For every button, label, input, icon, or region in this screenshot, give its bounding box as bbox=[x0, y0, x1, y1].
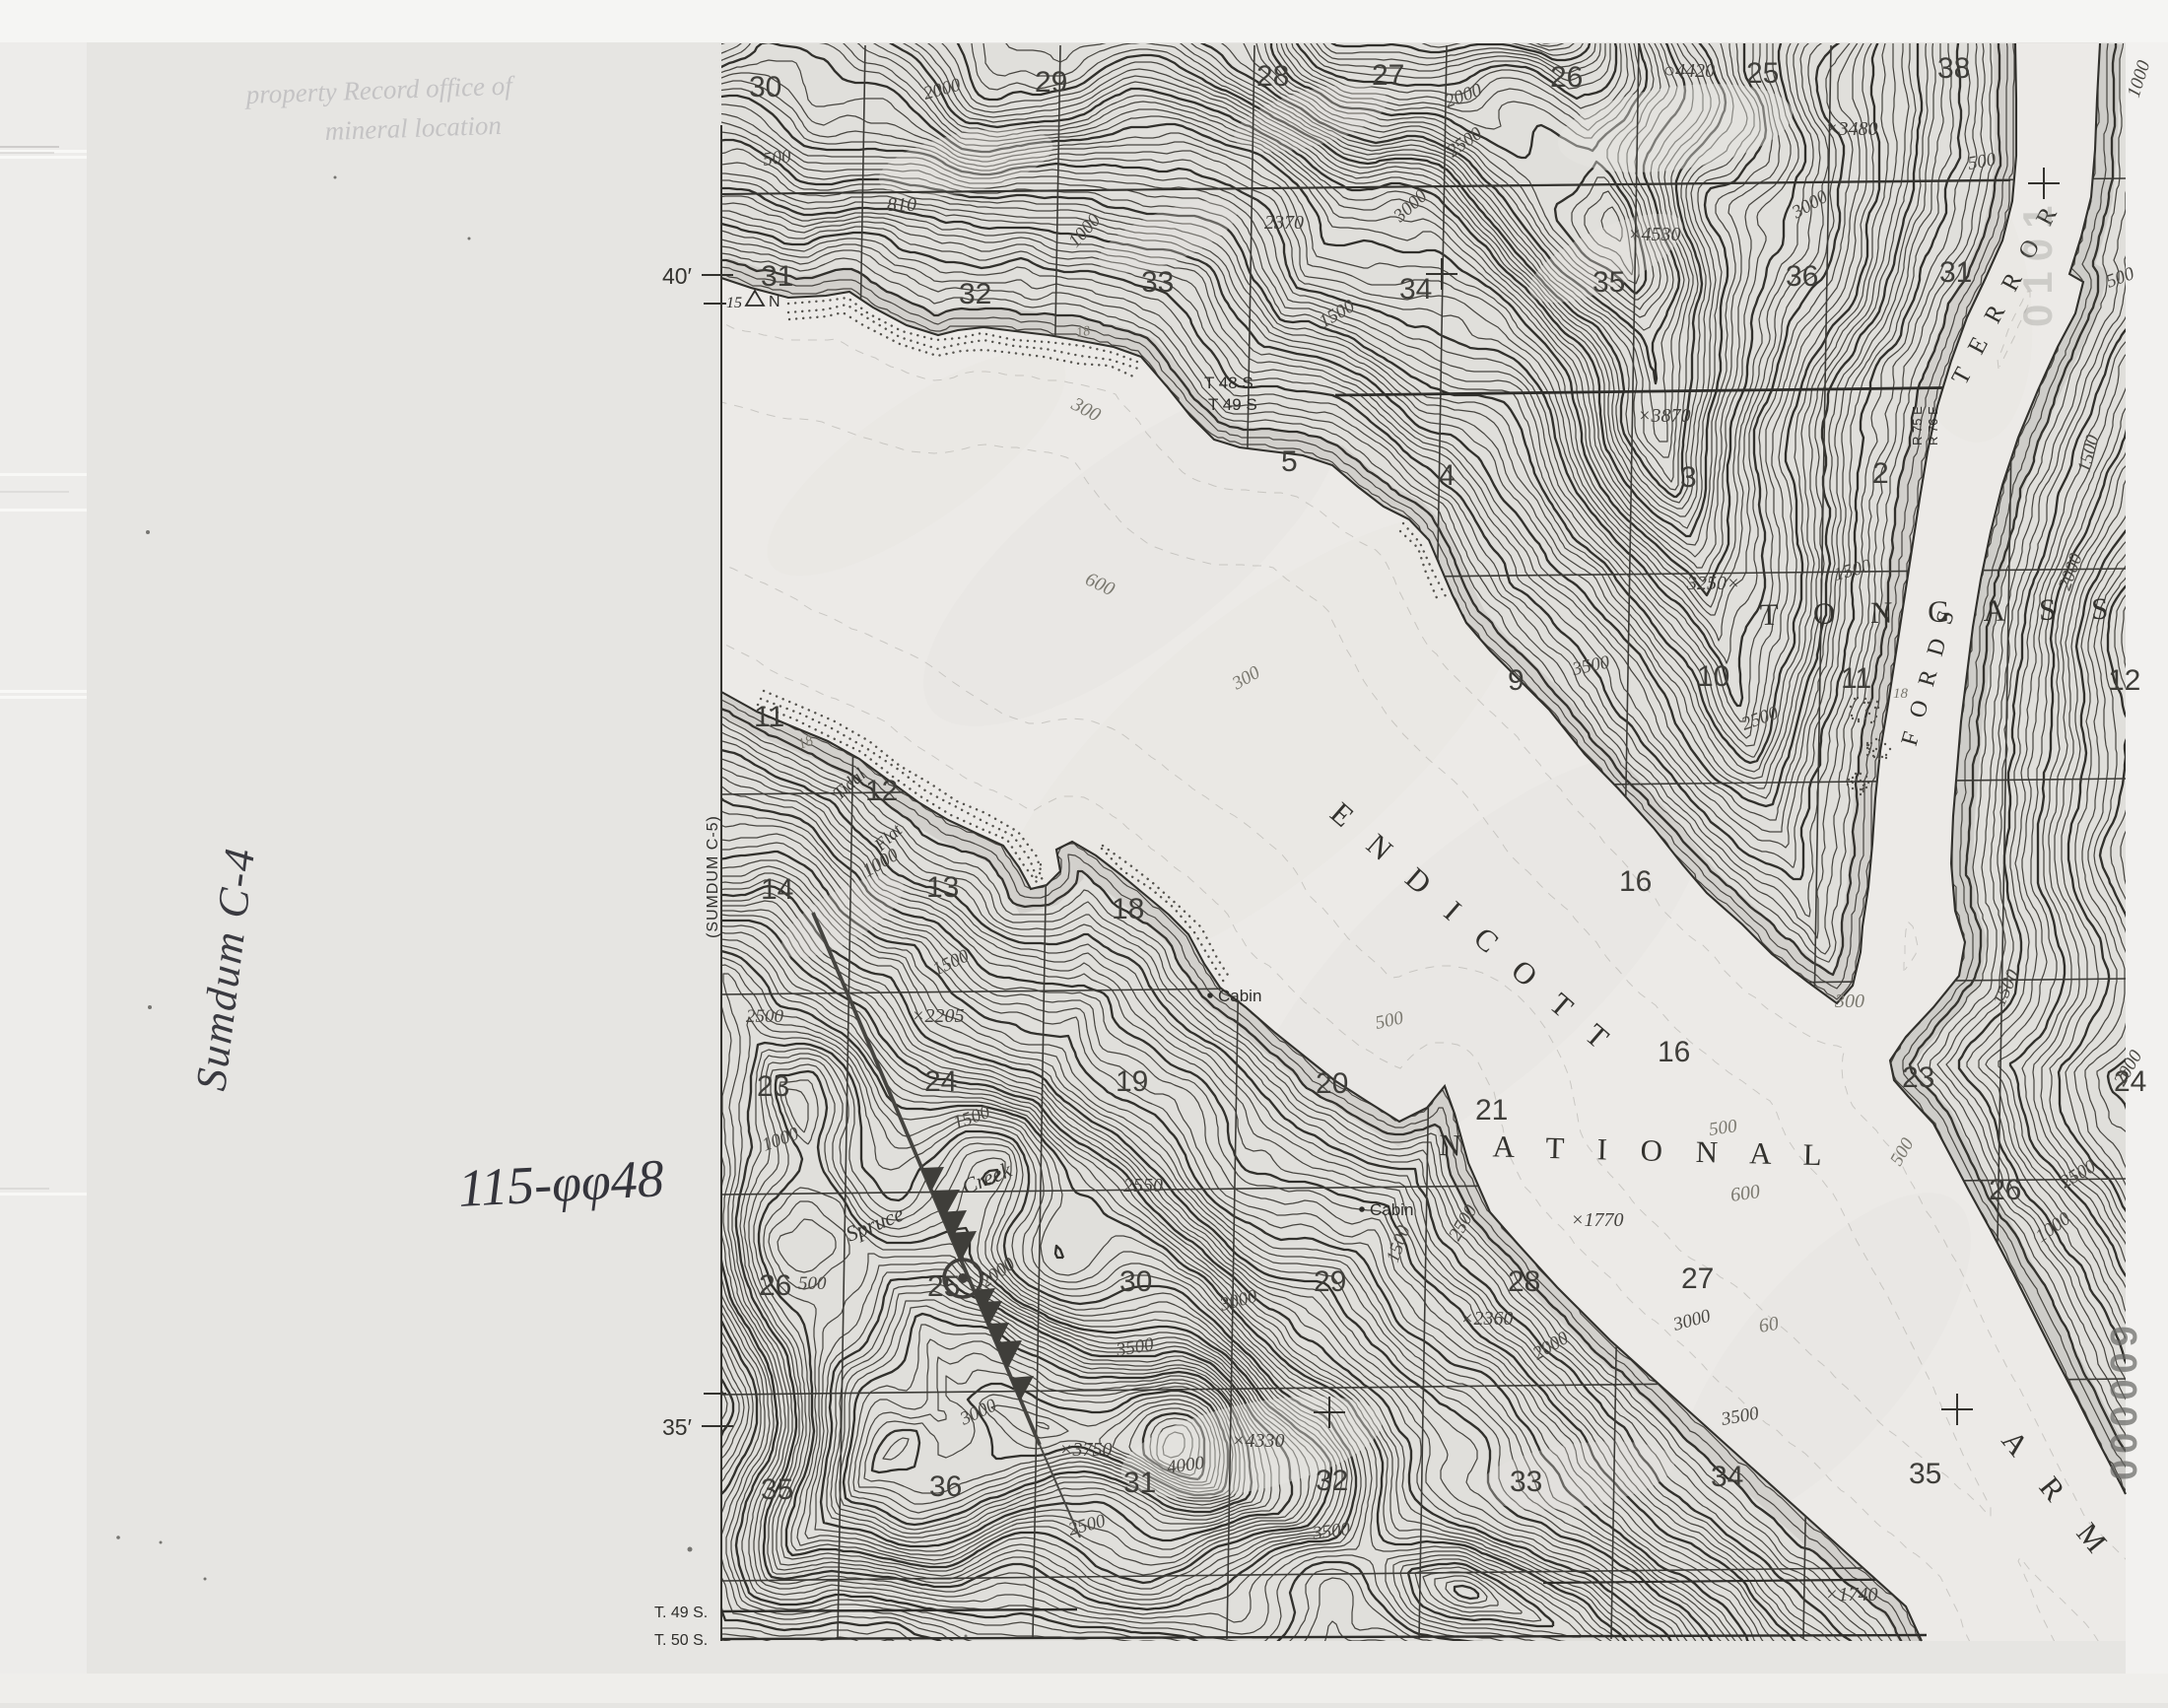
svg-text:36: 36 bbox=[929, 1470, 962, 1503]
svg-text:26: 26 bbox=[1550, 61, 1583, 94]
svg-text:14: 14 bbox=[761, 873, 793, 906]
svg-text:R 76 E: R 76 E bbox=[1926, 406, 1940, 445]
svg-text:Cabin: Cabin bbox=[1370, 1200, 1413, 1219]
svg-text:26: 26 bbox=[1989, 1174, 2021, 1206]
svg-text:×2360: ×2360 bbox=[1460, 1308, 1514, 1330]
svg-text:9: 9 bbox=[1508, 664, 1524, 697]
svg-text:15: 15 bbox=[726, 295, 742, 311]
svg-text:4: 4 bbox=[1439, 459, 1456, 492]
svg-text:115-φφ48: 115-φφ48 bbox=[456, 1148, 665, 1218]
svg-text:×3480: ×3480 bbox=[1825, 118, 1878, 140]
svg-text:28: 28 bbox=[1256, 60, 1289, 93]
svg-text:18: 18 bbox=[1075, 324, 1091, 341]
svg-text:×4330: ×4330 bbox=[1232, 1430, 1285, 1452]
svg-text:300: 300 bbox=[1834, 991, 1864, 1012]
svg-text:31: 31 bbox=[761, 260, 793, 293]
svg-text:27: 27 bbox=[1681, 1263, 1714, 1295]
svg-text:35: 35 bbox=[761, 1473, 793, 1506]
svg-text:18: 18 bbox=[1893, 686, 1909, 702]
svg-text:38: 38 bbox=[1937, 52, 1970, 85]
svg-text:33: 33 bbox=[1510, 1466, 1542, 1498]
svg-text:27: 27 bbox=[1372, 59, 1404, 92]
svg-text:T. 49 S.: T. 49 S. bbox=[654, 1605, 708, 1621]
svg-text:31: 31 bbox=[1123, 1467, 1156, 1499]
svg-text:24: 24 bbox=[924, 1065, 957, 1098]
svg-text:16: 16 bbox=[1658, 1036, 1690, 1068]
svg-text:31: 31 bbox=[1939, 256, 1972, 289]
svg-text:29: 29 bbox=[1314, 1265, 1346, 1298]
svg-text:N: N bbox=[769, 294, 780, 310]
svg-text:500: 500 bbox=[798, 1273, 827, 1294]
svg-text:T 48 S: T 48 S bbox=[1204, 374, 1253, 392]
svg-text:2550: 2550 bbox=[1123, 1175, 1163, 1196]
svg-text:23: 23 bbox=[757, 1070, 789, 1103]
svg-text:12: 12 bbox=[2108, 664, 2140, 697]
svg-text:16: 16 bbox=[1619, 865, 1652, 898]
svg-text:3250×: 3250× bbox=[1686, 573, 1740, 594]
svg-text:T. 50 S.: T. 50 S. bbox=[654, 1632, 708, 1649]
svg-text:26: 26 bbox=[759, 1269, 791, 1302]
svg-text:30: 30 bbox=[749, 71, 781, 103]
svg-text:×3750: ×3750 bbox=[1059, 1439, 1113, 1461]
svg-text:60: 60 bbox=[1757, 1313, 1781, 1337]
svg-text:500: 500 bbox=[762, 146, 793, 171]
svg-text:18: 18 bbox=[1112, 893, 1144, 925]
svg-text:Cabin: Cabin bbox=[1218, 987, 1261, 1005]
svg-text:3: 3 bbox=[1680, 461, 1697, 494]
svg-text:20: 20 bbox=[1316, 1067, 1348, 1100]
svg-text:2: 2 bbox=[1872, 457, 1889, 490]
svg-text:T 49 S: T 49 S bbox=[1208, 395, 1257, 414]
svg-text:○4420: ○4420 bbox=[1663, 60, 1715, 82]
svg-text:11: 11 bbox=[754, 701, 784, 733]
svg-text:34: 34 bbox=[1711, 1461, 1743, 1493]
svg-text:23: 23 bbox=[1902, 1061, 1934, 1094]
svg-text:35: 35 bbox=[1592, 266, 1625, 299]
svg-text:30: 30 bbox=[1119, 1265, 1152, 1298]
svg-text:R 75 E: R 75 E bbox=[1910, 406, 1925, 445]
svg-text:5: 5 bbox=[1281, 445, 1298, 478]
svg-text:×2205: ×2205 bbox=[912, 1005, 965, 1027]
svg-text:0101: 0101 bbox=[2014, 196, 2061, 327]
svg-text:29: 29 bbox=[1035, 66, 1067, 99]
svg-text:13: 13 bbox=[926, 871, 959, 904]
svg-text:19: 19 bbox=[1116, 1065, 1148, 1098]
svg-text:(SUMDUM C-5): (SUMDUM C-5) bbox=[705, 815, 721, 938]
svg-text:600: 600 bbox=[1729, 1181, 1762, 1206]
svg-text:36: 36 bbox=[1786, 260, 1818, 293]
svg-text:000009: 000009 bbox=[2104, 1320, 2145, 1480]
svg-text:2370: 2370 bbox=[1264, 212, 1304, 234]
svg-text:×1770: ×1770 bbox=[1571, 1209, 1624, 1231]
svg-text:34: 34 bbox=[1399, 273, 1432, 306]
svg-text:32: 32 bbox=[1316, 1465, 1348, 1497]
svg-text:35: 35 bbox=[1909, 1458, 1941, 1490]
svg-text:×1740: ×1740 bbox=[1825, 1584, 1878, 1606]
svg-text:mineral location: mineral location bbox=[324, 110, 502, 146]
svg-text:10: 10 bbox=[1697, 660, 1729, 693]
svg-text:×3870: ×3870 bbox=[1638, 405, 1691, 427]
svg-text:810: 810 bbox=[887, 194, 916, 216]
svg-text:12: 12 bbox=[865, 775, 898, 807]
svg-text:28: 28 bbox=[1508, 1265, 1540, 1298]
svg-text:32: 32 bbox=[959, 278, 991, 310]
svg-text:21: 21 bbox=[1475, 1094, 1508, 1127]
svg-text:40′: 40′ bbox=[662, 263, 692, 289]
svg-text:35′: 35′ bbox=[662, 1414, 692, 1440]
svg-text:×4530: ×4530 bbox=[1628, 224, 1681, 245]
svg-text:25: 25 bbox=[1746, 57, 1779, 90]
svg-text:2500: 2500 bbox=[746, 1006, 784, 1027]
svg-text:33: 33 bbox=[1141, 266, 1174, 299]
svg-text:11: 11 bbox=[1841, 662, 1871, 695]
